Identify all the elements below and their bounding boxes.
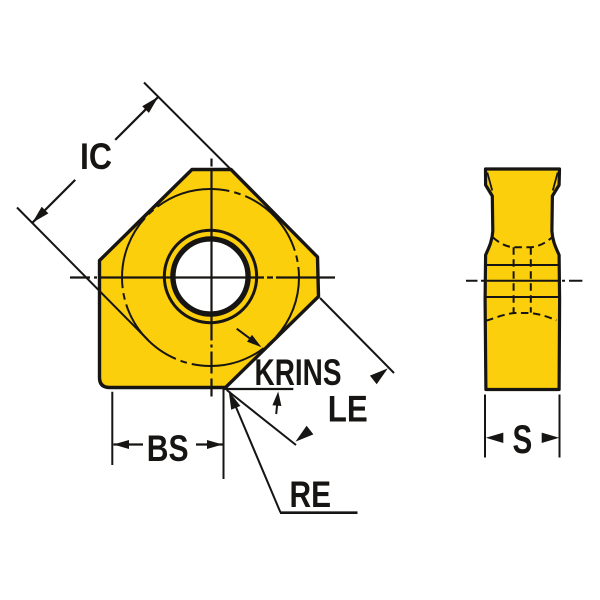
svg-text:KRINS: KRINS <box>255 351 342 393</box>
svg-text:IC: IC <box>80 137 112 178</box>
svg-text:BS: BS <box>147 428 189 470</box>
svg-text:RE: RE <box>290 475 332 516</box>
svg-text:S: S <box>513 418 533 462</box>
svg-text:LE: LE <box>328 389 368 430</box>
